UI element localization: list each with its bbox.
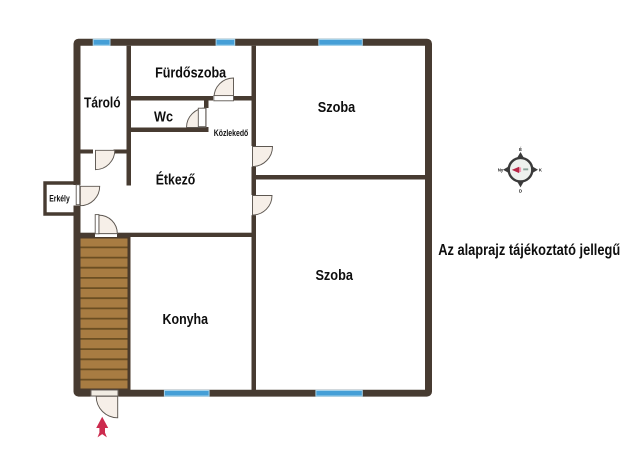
- svg-text:Erkély: Erkély: [49, 193, 70, 204]
- svg-text:Ny: Ny: [498, 167, 504, 172]
- svg-text:Tároló: Tároló: [84, 94, 121, 111]
- svg-text:Közlekedő: Közlekedő: [214, 128, 249, 139]
- svg-text:Szoba: Szoba: [315, 267, 353, 284]
- svg-text:Étkező: Étkező: [156, 171, 196, 188]
- svg-text:Wc: Wc: [154, 108, 173, 125]
- svg-text:Fürdőszoba: Fürdőszoba: [155, 64, 227, 81]
- svg-text:K: K: [539, 167, 542, 172]
- svg-text:É: É: [519, 147, 522, 152]
- svg-text:D: D: [519, 189, 522, 194]
- svg-text:Szoba: Szoba: [318, 99, 356, 116]
- svg-text:Konyha: Konyha: [163, 311, 209, 328]
- svg-text:Az alaprajz tájékoztató jelleg: Az alaprajz tájékoztató jellegű: [438, 242, 620, 259]
